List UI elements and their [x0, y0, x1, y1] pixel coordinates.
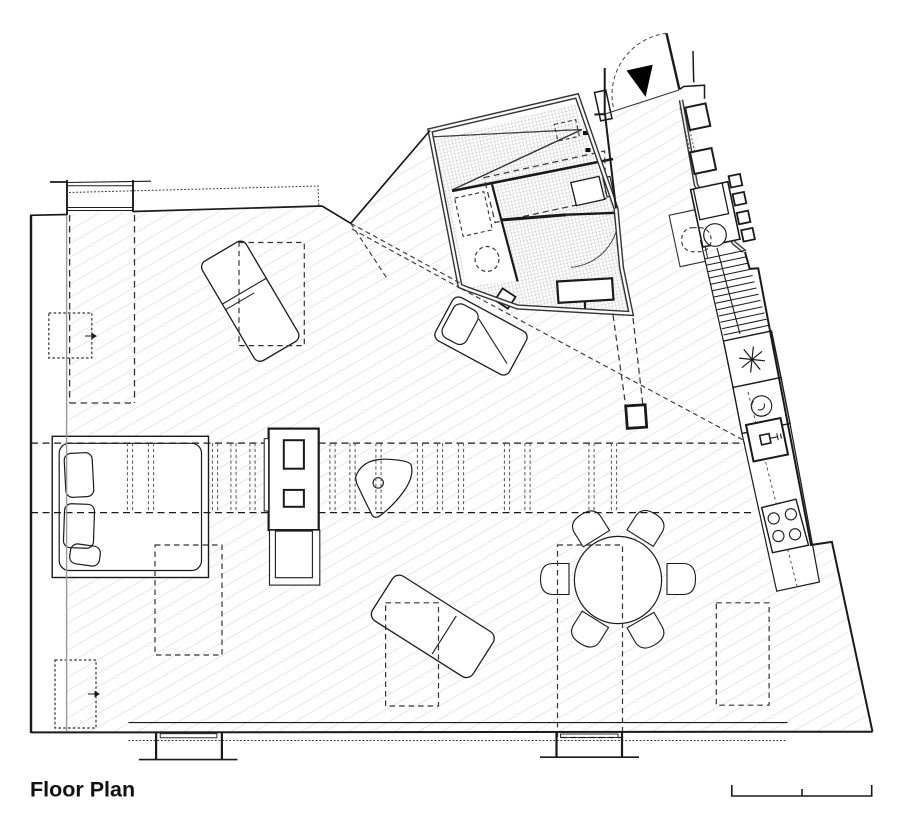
svg-text:Floor Plan: Floor Plan	[30, 778, 135, 802]
